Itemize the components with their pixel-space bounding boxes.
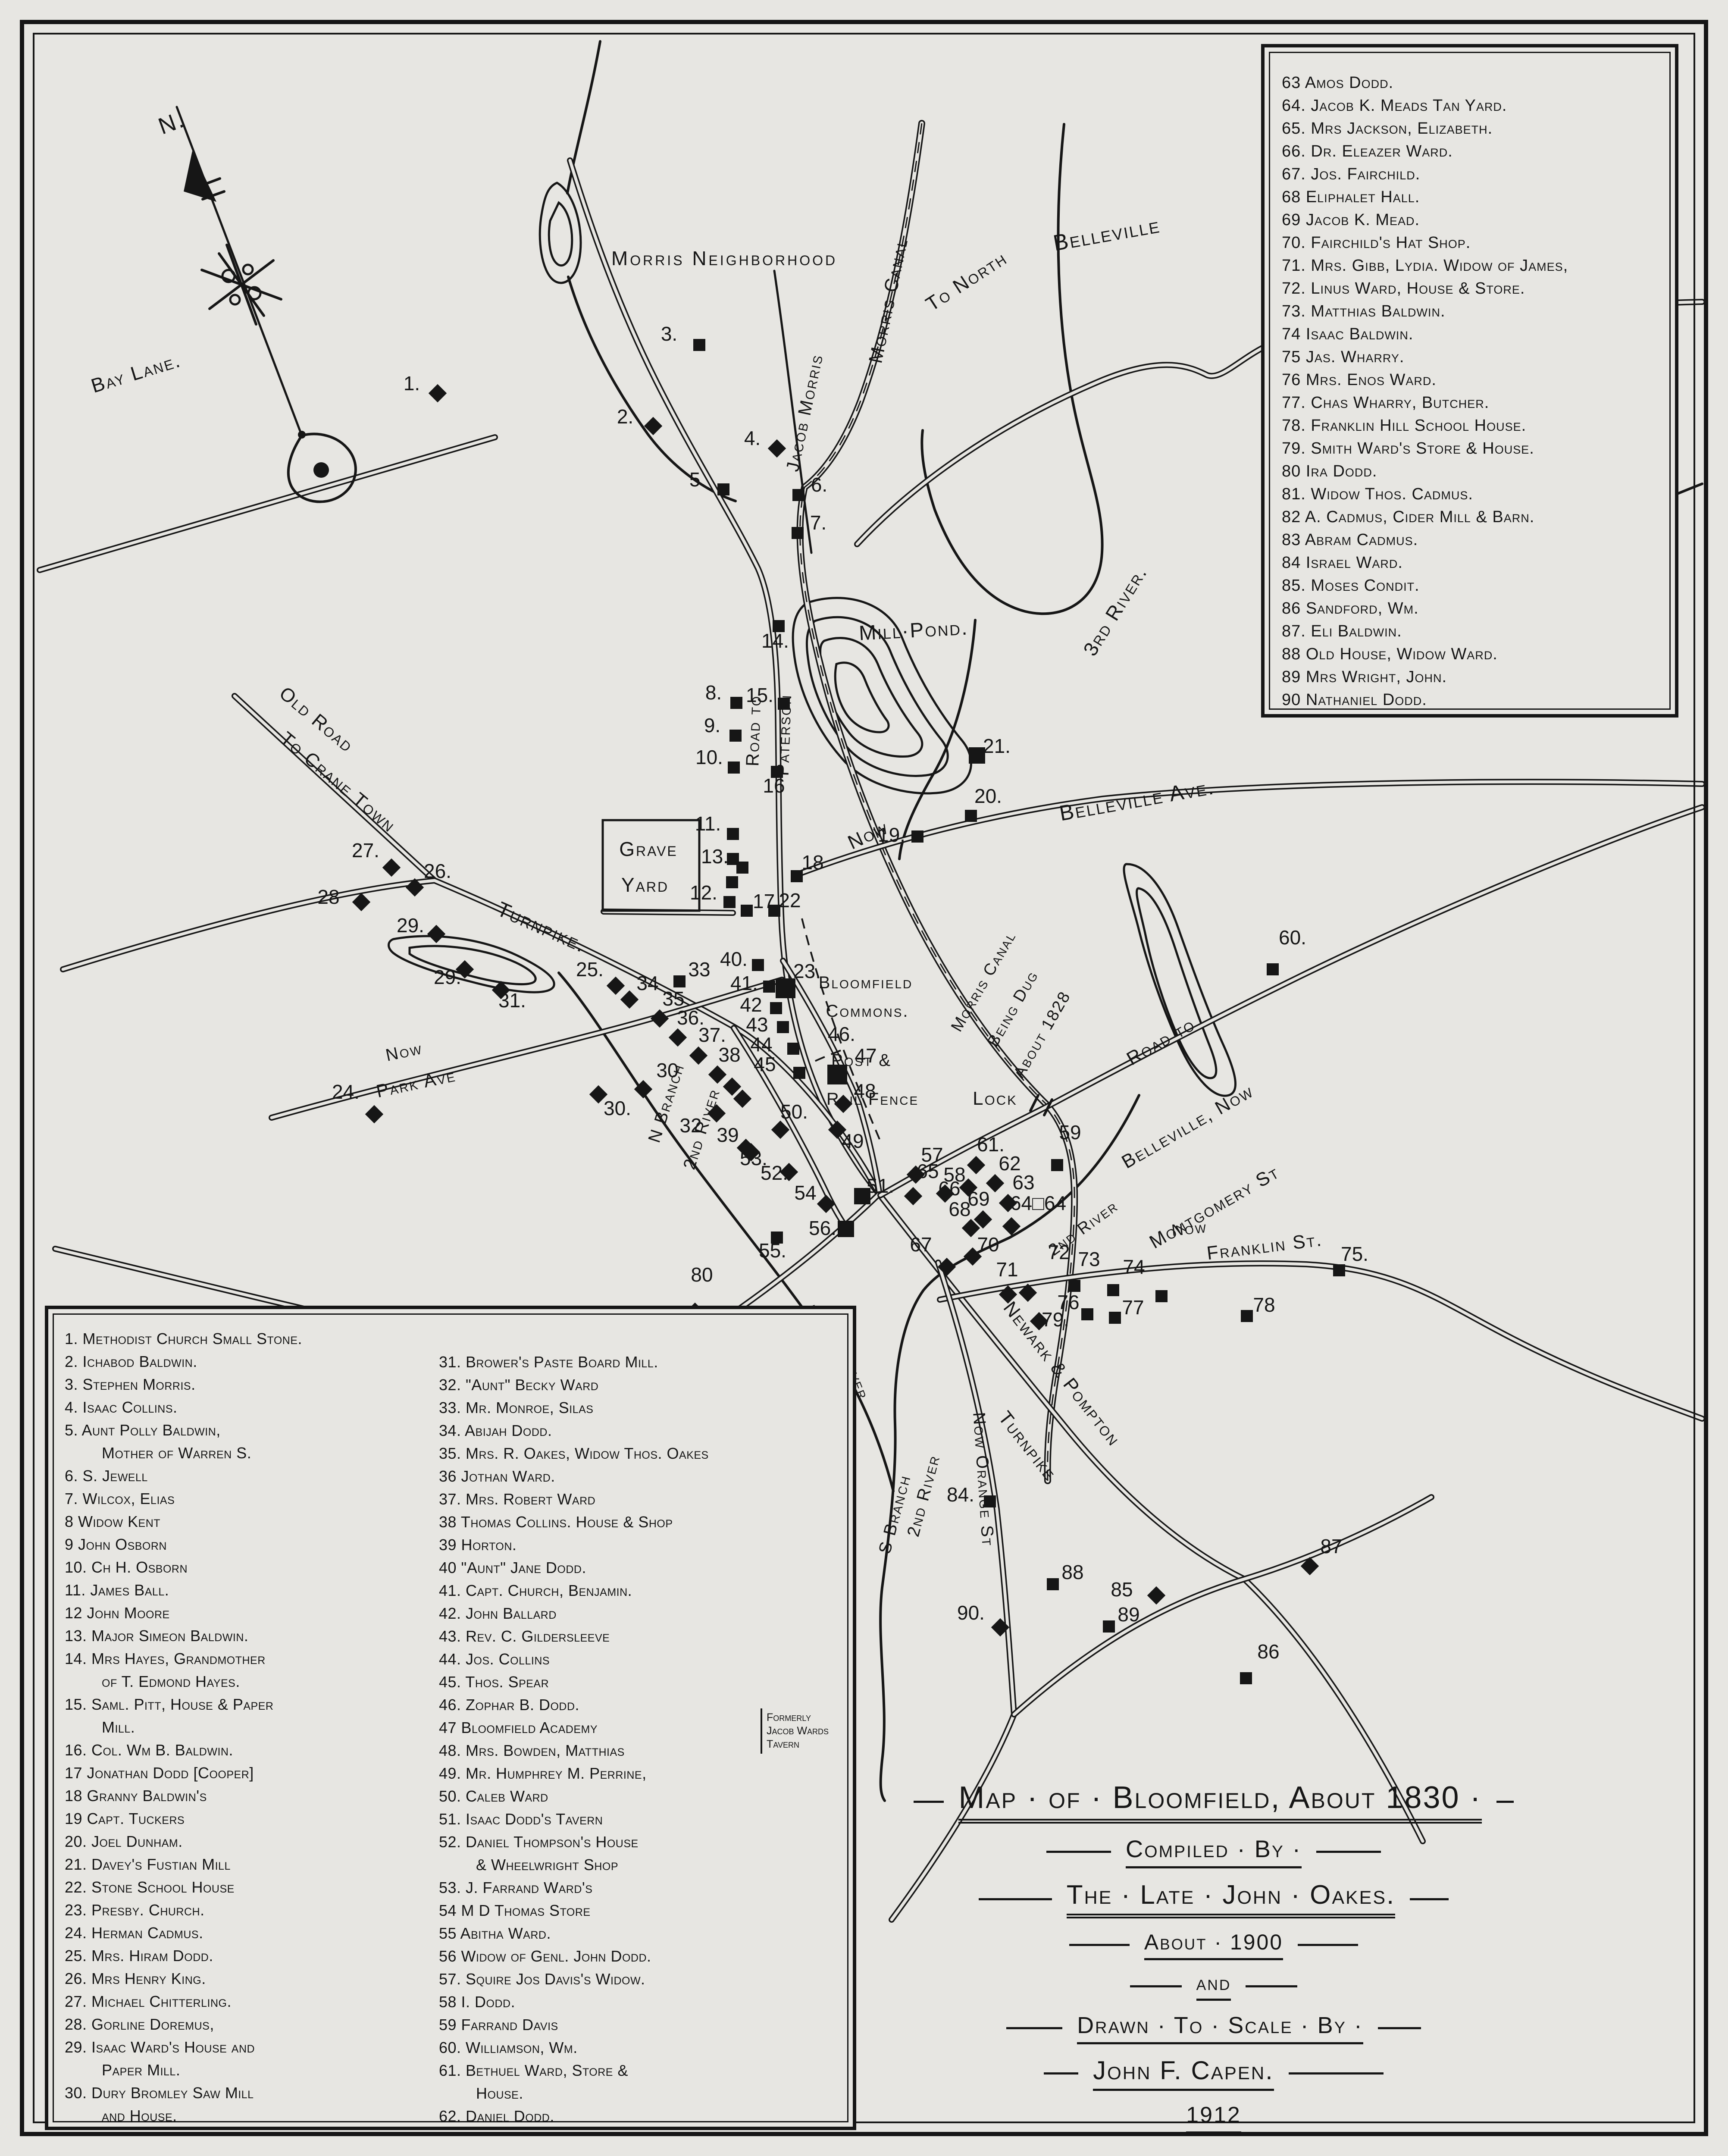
house-marker-17 <box>741 905 753 917</box>
pond-upper-i <box>549 203 572 266</box>
legend-left-col2-item-1: 31. Brower's Paste Board Mill. <box>439 1351 853 1373</box>
house-number-38: 38 <box>718 1044 740 1066</box>
legend-left-col2-item-25: 55 Abitha Ward. <box>439 1922 853 1945</box>
house-marker-8 <box>730 697 742 709</box>
house-number-90: 90. <box>957 1601 985 1624</box>
title-line-2: Compiled · By · <box>1046 1835 1381 1868</box>
compass-teardrop-center <box>313 462 329 478</box>
legend-left-col2-item-10: 40 "Aunt" Jane Dodd. <box>439 1556 853 1579</box>
house-number-5: 5. <box>689 468 706 491</box>
house-number-42: 42 <box>740 993 762 1016</box>
legend-left-col1-item-5: 5. Aunt Polly Baldwin, Mother of Warren … <box>65 1419 444 1464</box>
house-number-23: 23. <box>793 960 821 982</box>
house-marker-59 <box>1051 1159 1063 1171</box>
title-dash <box>1316 1851 1381 1853</box>
house-marker-19 <box>911 830 923 843</box>
legend-left-column-1: 1. Methodist Church Small Stone.2. Ichab… <box>65 1327 444 2127</box>
legend-left-col2-item-5: 35. Mrs. R. Oakes, Widow Thos. Oakes <box>439 1442 853 1465</box>
house-number-67: 67 <box>910 1233 932 1256</box>
legend-left-col2-item-13: 43. Rev. C. Gildersleeve <box>439 1625 853 1648</box>
legend-right-item-23: 85. Moses Condit. <box>1282 574 1665 597</box>
house-marker-10 <box>728 761 740 774</box>
title-dash <box>1006 2027 1062 2029</box>
title-line-4: About · 1900 <box>1069 1930 1358 1960</box>
house-marker <box>723 1078 741 1096</box>
house-number-45: 45 <box>754 1053 776 1075</box>
legend-left-col1-item-1: 1. Methodist Church Small Stone. <box>65 1327 444 1350</box>
legend-left-col1-item-21: 21. Davey's Fustian Mill <box>65 1853 444 1876</box>
house-marker-24 <box>365 1105 383 1123</box>
house-number-21: 21. <box>983 735 1011 757</box>
map-label-now-orange-st: Now Orange St <box>969 1412 998 1548</box>
compass-arrowhead <box>184 151 216 202</box>
legend-box-left: 1. Methodist Church Small Stone.2. Ichab… <box>45 1306 856 2130</box>
house-marker-33 <box>673 975 686 987</box>
house-marker-1 <box>429 384 447 402</box>
legend-right-item-17: 79. Smith Ward's Store & House. <box>1282 437 1665 460</box>
house-number-63: 63 <box>1012 1171 1034 1194</box>
house-marker-12 <box>723 896 736 908</box>
river-third-river-loop <box>922 124 1102 614</box>
map-label-commons-: Commons. <box>826 1002 909 1021</box>
title-dash <box>1410 1898 1449 1900</box>
house-number-24: 24. <box>332 1081 360 1103</box>
pond-turnpike-i <box>410 946 535 984</box>
river-stream-upper-outlet <box>568 277 736 501</box>
house-number-65: 65 <box>917 1160 939 1182</box>
map-sheet: 1.2.3.4.5.6.7.8.9.10.11.12.13.14.15.1617… <box>0 0 1728 2156</box>
legend-left-col1-item-13: 13. Major Simeon Baldwin. <box>65 1624 444 1647</box>
map-label-grave: Grave <box>619 838 678 860</box>
map-label-paterson: Paterson <box>772 694 795 777</box>
title-text-6: Drawn · To · Scale · By · <box>1077 2012 1363 2044</box>
house-number-14: 14. <box>761 630 789 652</box>
house-number-3: 3. <box>661 323 677 345</box>
house-marker-4 <box>768 439 786 458</box>
legend-right-item-15: 77. Chas Wharry, Butcher. <box>1282 392 1665 414</box>
map-label-to-north: To North <box>922 247 1011 316</box>
title-line-8: 1912 <box>1186 2102 1241 2134</box>
house-number-66: 66 <box>938 1177 960 1200</box>
compass-star-spoke-4 <box>219 254 264 316</box>
house-number-78: 78 <box>1253 1294 1275 1316</box>
house-marker-76 <box>1081 1308 1093 1320</box>
house-number-49: 49 <box>842 1130 864 1152</box>
house-number-74: 74 <box>1123 1256 1145 1278</box>
house-number-89: 89 <box>1118 1603 1139 1626</box>
legend-left-col2-item-8: 38 Thomas Collins. House & Shop <box>439 1510 853 1533</box>
map-label-bloomfield: Bloomfield <box>819 973 913 992</box>
legend-left-col1-item-10: 10. Ch H. Osborn <box>65 1556 444 1579</box>
house-number-26: 26. <box>424 860 451 882</box>
compass-teardrop-knot <box>298 431 306 439</box>
house-number-60: 60. <box>1279 926 1306 949</box>
house-marker <box>733 1090 751 1108</box>
map-label-now: Now <box>1171 1218 1208 1240</box>
title-dash <box>1496 1801 1514 1803</box>
house-number-69: 69 <box>967 1188 989 1210</box>
legend-left-col1-item-30: 30. Dury Bromley Saw Mill and House. <box>65 2081 444 2127</box>
house-number-43: 43 <box>746 1013 768 1036</box>
house-marker-9 <box>729 730 742 742</box>
house-number-22: 22 <box>779 889 801 912</box>
legend-right-item-9: 71. Mrs. Gibb, Lydia. Widow of James, <box>1282 254 1665 277</box>
legend-left-col1-item-29: 29. Isaac Ward's House and Paper Mill. <box>65 2036 444 2081</box>
title-dash <box>1044 2072 1078 2075</box>
legend-right-item-1: 63 Amos Dodd. <box>1282 72 1665 94</box>
house-number-2: 2. <box>617 405 633 428</box>
title-line-1: Map · of · Bloomfield, About 1830 · <box>914 1780 1513 1824</box>
house-number-41: 41. <box>730 972 758 994</box>
house-marker-27 <box>382 859 401 877</box>
house-number-85: 85 <box>1111 1578 1133 1601</box>
title-dash <box>1289 2072 1384 2075</box>
house-marker-37 <box>689 1047 707 1065</box>
title-dash <box>1046 1851 1111 1853</box>
legend-left-col1-item-28: 28. Gorline Doremus, <box>65 2013 444 2036</box>
house-marker-44 <box>787 1043 799 1055</box>
legend-left-col1-item-2: 2. Ichabod Baldwin. <box>65 1350 444 1373</box>
map-label-mill-pond-: Mill·Pond. <box>858 616 969 645</box>
house-number-25: 25. <box>576 958 604 981</box>
house-number-30: 30. <box>604 1097 631 1119</box>
house-number-54: 54 <box>794 1181 816 1204</box>
house-marker-73 <box>1107 1284 1119 1296</box>
legend-left-col2-item-29: 59 Farrand Davis <box>439 2013 853 2036</box>
legend-right-item-27: 89 Mrs Wright, John. <box>1282 666 1665 689</box>
house-number-39: 39 <box>717 1124 739 1146</box>
house-marker-45 <box>793 1067 805 1079</box>
legend-right-item-24: 86 Sandford, Wm. <box>1282 597 1665 620</box>
house-marker <box>726 876 738 888</box>
house-number-31: 31. <box>498 989 526 1012</box>
house-number-73: 73 <box>1078 1248 1100 1270</box>
house-number-59: 59 <box>1059 1121 1081 1144</box>
title-line-3: The · Late · John · Oakes. <box>979 1880 1449 1918</box>
house-marker-23 <box>776 978 795 998</box>
title-text-8: 1912 <box>1186 2102 1241 2134</box>
title-line-7: John F. Capen. <box>1044 2056 1384 2091</box>
legend-right-item-20: 82 A. Cadmus, Cider Mill & Barn. <box>1282 506 1665 529</box>
map-label-park-ave: Park Ave <box>374 1065 457 1101</box>
house-number-4: 4. <box>744 427 761 449</box>
house-marker-40 <box>752 959 764 971</box>
house-number-55: 55. <box>759 1239 786 1262</box>
legend-right-item-13: 75 Jas. Wharry. <box>1282 346 1665 369</box>
legend-left-col2-item-9: 39 Horton. <box>439 1533 853 1556</box>
house-marker-85 <box>1147 1586 1165 1604</box>
house-marker-89 <box>1103 1620 1115 1633</box>
legend-right-item-4: 66. Dr. Eleazer Ward. <box>1282 140 1665 163</box>
legend-left-col2-item-22: 52. Daniel Thompson's House & Wheelwrigh… <box>439 1830 853 1876</box>
house-marker-72 <box>1068 1280 1080 1292</box>
road-road-88-89-87 <box>1014 1497 1431 1714</box>
mill-pond-i2 <box>820 638 922 757</box>
house-marker-65 <box>904 1187 922 1205</box>
house-number-10: 10. <box>695 746 723 768</box>
house-marker-60 <box>1267 963 1279 975</box>
title-dash <box>1378 2027 1421 2029</box>
legend-right-item-16: 78. Franklin Hill School House. <box>1282 414 1665 437</box>
house-marker-36 <box>669 1028 687 1047</box>
house-marker-6 <box>792 489 805 501</box>
house-marker-50 <box>771 1121 789 1139</box>
legend-left-col1-item-20: 20. Joel Dunham. <box>65 1830 444 1853</box>
house-number-12: 12. <box>690 881 717 904</box>
legend-left-col2-item-3: 33. Mr. Monroe, Silas <box>439 1396 853 1419</box>
compass-needle-line <box>177 107 302 436</box>
house-number-1: 1. <box>404 372 420 395</box>
legend-left-col1-item-14: 14. Mrs Hayes, Grandmother of T. Edmond … <box>65 1647 444 1693</box>
title-dash <box>1246 1985 1297 1987</box>
legend-right-item-10: 72. Linus Ward, House & Store. <box>1282 277 1665 300</box>
map-label-post-: Post & <box>831 1051 892 1070</box>
legend-left-col2-item-27: 57. Squire Jos Davis's Widow. <box>439 1968 853 1990</box>
legend-left-col1-item-12: 12 John Moore <box>65 1601 444 1624</box>
legend-right-item-18: 80 Ira Dodd. <box>1282 460 1665 483</box>
legend-left-col1-item-9: 9 John Osborn <box>65 1533 444 1556</box>
house-number-84: 84. <box>947 1483 974 1506</box>
legend-left-col1-item-11: 11. James Ball. <box>65 1579 444 1601</box>
house-marker-78 <box>1241 1310 1253 1322</box>
legend-left-col1-item-19: 19 Capt. Tuckers <box>65 1807 444 1830</box>
house-marker-5 <box>717 483 729 495</box>
legend-right-item-22: 84 Israel Ward. <box>1282 552 1665 574</box>
legend-box-right: 63 Amos Dodd.64. Jacob K. Meads Tan Yard… <box>1261 44 1678 718</box>
title-dash <box>914 1801 944 1803</box>
legend-left-col2-item-30: 60. Williamson, Wm. <box>439 2036 853 2059</box>
legend-left-col2-item-7: 37. Mrs. Robert Ward <box>439 1488 853 1510</box>
house-number-56: 56. <box>809 1217 836 1239</box>
legend-right-items: 63 Amos Dodd.64. Jacob K. Meads Tan Yard… <box>1282 72 1665 711</box>
house-number-75: 75. <box>1341 1243 1368 1265</box>
legend-right-item-2: 64. Jacob K. Meads Tan Yard. <box>1282 94 1665 117</box>
house-marker-77 <box>1109 1312 1121 1324</box>
legend-right-item-28: 90 Nathaniel Dodd. <box>1282 689 1665 711</box>
legend-left-col2-item-31: 61. Bethuel Ward, Store & House. <box>439 2059 853 2105</box>
house-marker-13 <box>736 862 748 874</box>
house-number-13: 13. <box>701 845 729 868</box>
legend-left-col1-item-22: 22. Stone School House <box>65 1876 444 1899</box>
legend-left-col2-item-26: 56 Widow of Genl. John Dodd. <box>439 1945 853 1968</box>
house-number-88: 88 <box>1061 1561 1083 1583</box>
house-number-40: 40. <box>720 948 748 970</box>
legend-left-col2-item-12: 42. John Ballard <box>439 1602 853 1625</box>
house-number-37: 37. <box>698 1024 726 1046</box>
house-number-16: 16 <box>763 774 785 797</box>
house-number-51: 51. <box>867 1175 894 1197</box>
title-dash <box>1069 1944 1130 1946</box>
legend-right-item-3: 65. Mrs Jackson, Elizabeth. <box>1282 117 1665 140</box>
house-marker-38 <box>708 1065 726 1084</box>
house-marker-28 <box>352 893 370 911</box>
legend-left-col2-item-19: 49. Mr. Humphrey M. Perrine, <box>439 1762 853 1785</box>
legend-left-col1-item-26: 26. Mrs Henry King. <box>65 1967 444 1990</box>
legend-left-col1-item-24: 24. Herman Cadmus. <box>65 1921 444 1944</box>
house-number-9: 9. <box>704 714 720 736</box>
title-text-3: The · Late · John · Oakes. <box>1067 1880 1396 1918</box>
house-number-70: 70 <box>977 1233 999 1256</box>
house-marker-56 <box>838 1221 854 1237</box>
map-label-morris-canal: Morris Canal <box>865 236 912 365</box>
map-label-3rd-river-: 3rd River. <box>1079 562 1152 660</box>
legend-right-item-14: 76 Mrs. Enos Ward. <box>1282 369 1665 392</box>
house-marker-11 <box>727 828 739 840</box>
house-marker-43 <box>777 1021 789 1033</box>
title-block: Map · of · Bloomfield, About 1830 ·Compi… <box>875 1780 1552 2134</box>
title-line-6: Drawn · To · Scale · By · <box>1006 2012 1421 2044</box>
house-number-8: 8. <box>705 681 722 704</box>
legend-right-item-21: 83 Abram Cadmus. <box>1282 529 1665 552</box>
map-label-belleville-ave-: Belleville Ave. <box>1058 774 1217 825</box>
house-number-29: 29. <box>397 914 424 937</box>
house-marker-7 <box>792 527 804 539</box>
legend-left-col2-item-24: 54 M D Thomas Store <box>439 1899 853 1922</box>
house-marker-3 <box>693 339 705 351</box>
legend-left-col2-item-21: 51. Isaac Dodd's Tavern <box>439 1808 853 1830</box>
house-number-28: 28 <box>317 886 339 908</box>
map-label-lock: Lock <box>973 1088 1017 1109</box>
house-marker-42 <box>770 1002 782 1014</box>
house-number-87: 87 <box>1320 1535 1342 1557</box>
legend-left-col2-item-28: 58 I. Dodd. <box>439 1990 853 2013</box>
legend-left-col1-item-4: 4. Isaac Collins. <box>65 1396 444 1419</box>
house-number-20: 20. <box>974 785 1002 807</box>
legend-left-col2-item-23: 53. J. Farrand Ward's <box>439 1876 853 1899</box>
legend-left-col2-item-4: 34. Abijah Dodd. <box>439 1419 853 1442</box>
title-text-2: Compiled · By · <box>1126 1835 1302 1868</box>
title-line-5: and <box>1130 1971 1298 2001</box>
house-number-11: 11. <box>695 812 721 835</box>
legend-right-item-12: 74 Isaac Baldwin. <box>1282 323 1665 346</box>
map-label-franklin-st-: Franklin St. <box>1205 1229 1324 1264</box>
house-marker-29 <box>427 925 445 943</box>
house-number-79: 79. <box>1042 1308 1069 1331</box>
house-number-64: 64□64 <box>1010 1192 1066 1214</box>
house-number-77: 77 <box>1122 1296 1144 1319</box>
legend-left-col2-item-14: 44. Jos. Collins <box>439 1648 853 1670</box>
house-number-80: 80 <box>691 1263 713 1286</box>
legend-left-col2-item-32: 62. Daniel Dodd. <box>439 2105 853 2128</box>
house-marker-25 <box>607 977 625 995</box>
house-marker-34 <box>620 990 639 1009</box>
legend-left-col2-item-20: 50. Caleb Ward <box>439 1785 853 1808</box>
legend-left-col1-item-6: 6. S. Jewell <box>65 1464 444 1487</box>
legend-left-col1-item-3: 3. Stephen Morris. <box>65 1373 444 1396</box>
legend-right-item-26: 88 Old House, Widow Ward. <box>1282 643 1665 666</box>
map-label-2nd-river: 2nd River <box>904 1453 944 1539</box>
map-label-rail-fence: Rail Fence <box>826 1090 919 1109</box>
map-label-bay-lane-: Bay Lane. <box>88 348 184 397</box>
compass-star-curl-3 <box>230 295 240 304</box>
house-marker-88 <box>1047 1578 1059 1590</box>
legend-right-item-5: 67. Jos. Fairchild. <box>1282 163 1665 186</box>
legend-left-col1-item-8: 8 Widow Kent <box>65 1510 444 1533</box>
legend-left-col1-item-25: 25. Mrs. Hiram Dodd. <box>65 1944 444 1967</box>
legend-right-item-11: 73. Matthias Baldwin. <box>1282 300 1665 323</box>
house-number-33: 33 <box>688 958 710 981</box>
house-number-86: 86 <box>1257 1640 1279 1663</box>
map-label-road-to: Road to <box>742 695 765 767</box>
map-label-turnpike-: Turnpike. <box>494 898 590 957</box>
title-text-4: About · 1900 <box>1144 1930 1283 1960</box>
legend-left-col1-item-16: 16. Col. Wm B. Baldwin. <box>65 1739 444 1761</box>
house-marker-20 <box>965 810 977 822</box>
legend-right-item-6: 68 Eliphalet Hall. <box>1282 186 1665 209</box>
house-number-18: 18 <box>801 851 823 874</box>
legend-note-jacob-wards-tavern: Formerly Jacob Wards Tavern <box>761 1708 830 1754</box>
title-text-5: and <box>1196 1971 1231 2001</box>
house-number-29: 29. <box>434 966 461 988</box>
house-marker-75 <box>1333 1264 1345 1276</box>
legend-left-col1-item-17: 17 Jonathan Dodd [Cooper] <box>65 1761 444 1784</box>
compass-star-curl-4 <box>243 265 253 274</box>
pond-upper <box>540 183 581 283</box>
title-text-7: John F. Capen. <box>1093 2056 1274 2091</box>
house-number-71: 71 <box>996 1258 1018 1281</box>
house-number-44: 44 <box>750 1033 772 1056</box>
house-number-53: 53. <box>740 1147 767 1169</box>
house-number-50: 50. <box>780 1100 808 1123</box>
map-label-now: Now <box>384 1039 424 1065</box>
house-marker-18 <box>791 870 803 882</box>
grave-yard-outline <box>603 820 699 911</box>
house-number-46: 46. <box>828 1023 855 1045</box>
legend-right-item-19: 81. Widow Thos. Cadmus. <box>1282 483 1665 506</box>
legend-left-col1-item-27: 27. Michael Chitterling. <box>65 1990 444 2013</box>
legend-right-item-8: 70. Fairchild's Hat Shop. <box>1282 232 1665 254</box>
title-dash <box>1298 1944 1358 1946</box>
map-label-yard: Yard <box>621 874 669 896</box>
legend-left-col1-item-18: 18 Granny Baldwin's <box>65 1784 444 1807</box>
legend-left-col2-item-15: 45. Thos. Spear <box>439 1670 853 1693</box>
house-marker-61 <box>967 1156 985 1174</box>
legend-left-col1-item-23: 23. Presby. Church. <box>65 1899 444 1921</box>
house-number-6: 6. <box>811 473 827 496</box>
house-number-7: 7. <box>810 511 826 534</box>
road-bay-lane <box>40 437 495 570</box>
map-label-n-: N. <box>155 107 188 140</box>
house-number-27: 27. <box>352 839 379 862</box>
legend-right-item-7: 69 Jacob K. Mead. <box>1282 209 1665 232</box>
legend-left-col1-item-15: 15. Saml. Pitt, House & Paper Mill. <box>65 1693 444 1739</box>
house-marker-74 <box>1155 1290 1168 1302</box>
legend-left-col1-item-7: 7. Wilcox, Elias <box>65 1487 444 1510</box>
map-label-belleville: Belleville <box>1052 213 1162 256</box>
legend-left-col2-item-2: 32. "Aunt" Becky Ward <box>439 1373 853 1396</box>
house-marker-41 <box>763 981 775 993</box>
title-dash <box>1130 1985 1182 1987</box>
map-label-morris-neighborhood: Morris Neighborhood <box>611 247 837 269</box>
legend-left-col2-item-11: 41. Capt. Church, Benjamin. <box>439 1579 853 1602</box>
title-dash <box>979 1898 1052 1900</box>
legend-left-col2-item-6: 36 Jothan Ward. <box>439 1465 853 1488</box>
house-marker-86 <box>1240 1672 1252 1684</box>
title-text-1: Map · of · Bloomfield, About 1830 · <box>958 1780 1481 1824</box>
house-number-34: 34 <box>636 972 658 994</box>
legend-right-item-25: 87. Eli Baldwin. <box>1282 620 1665 643</box>
